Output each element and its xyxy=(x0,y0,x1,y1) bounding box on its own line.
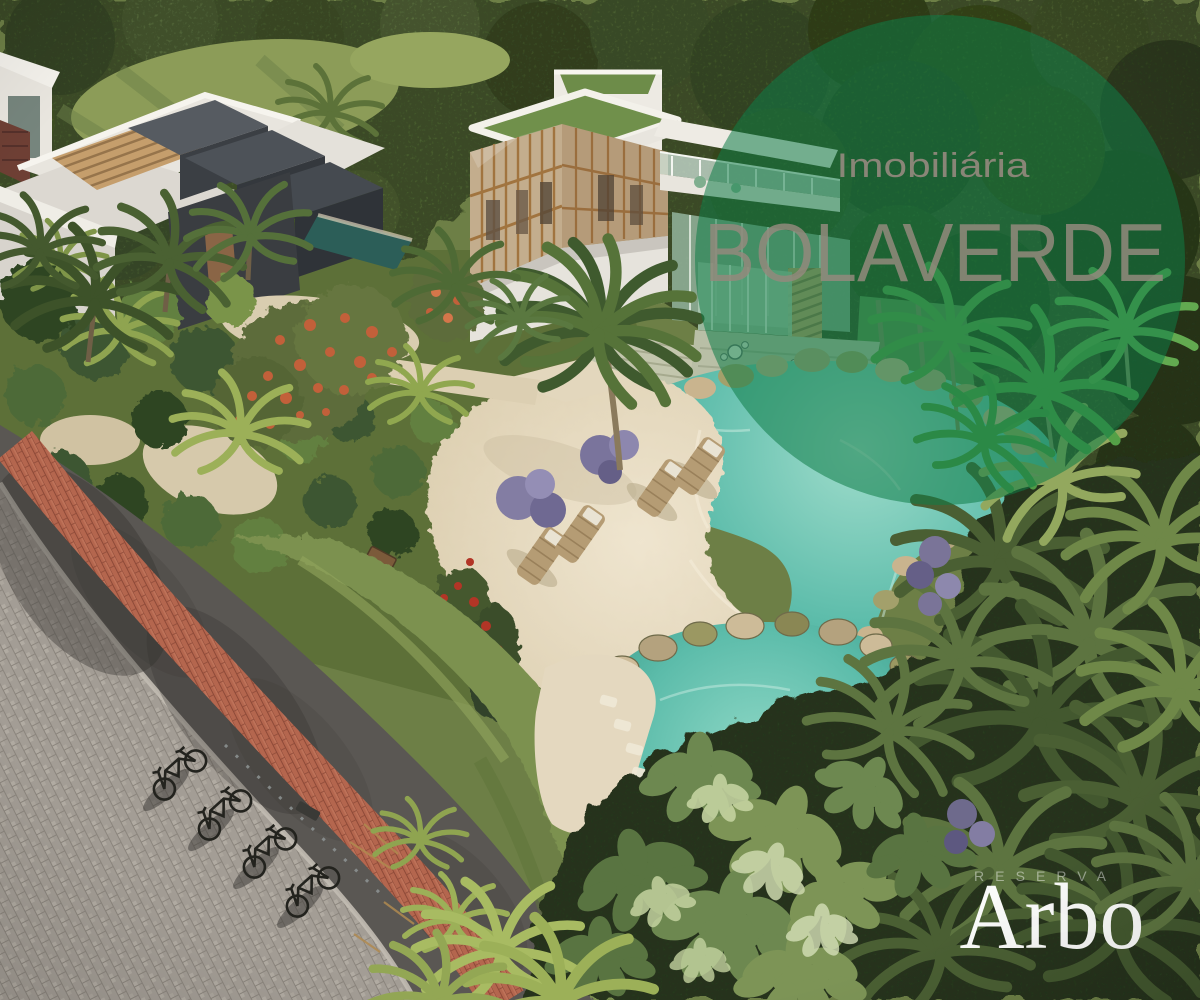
aerial-render-resort-scene: Imobiliária BOLAVERDE RESERVA Arbo xyxy=(0,0,1200,1000)
scene-canvas: Imobiliária BOLAVERDE RESERVA Arbo xyxy=(0,0,1200,1000)
vignette xyxy=(0,0,1200,1000)
